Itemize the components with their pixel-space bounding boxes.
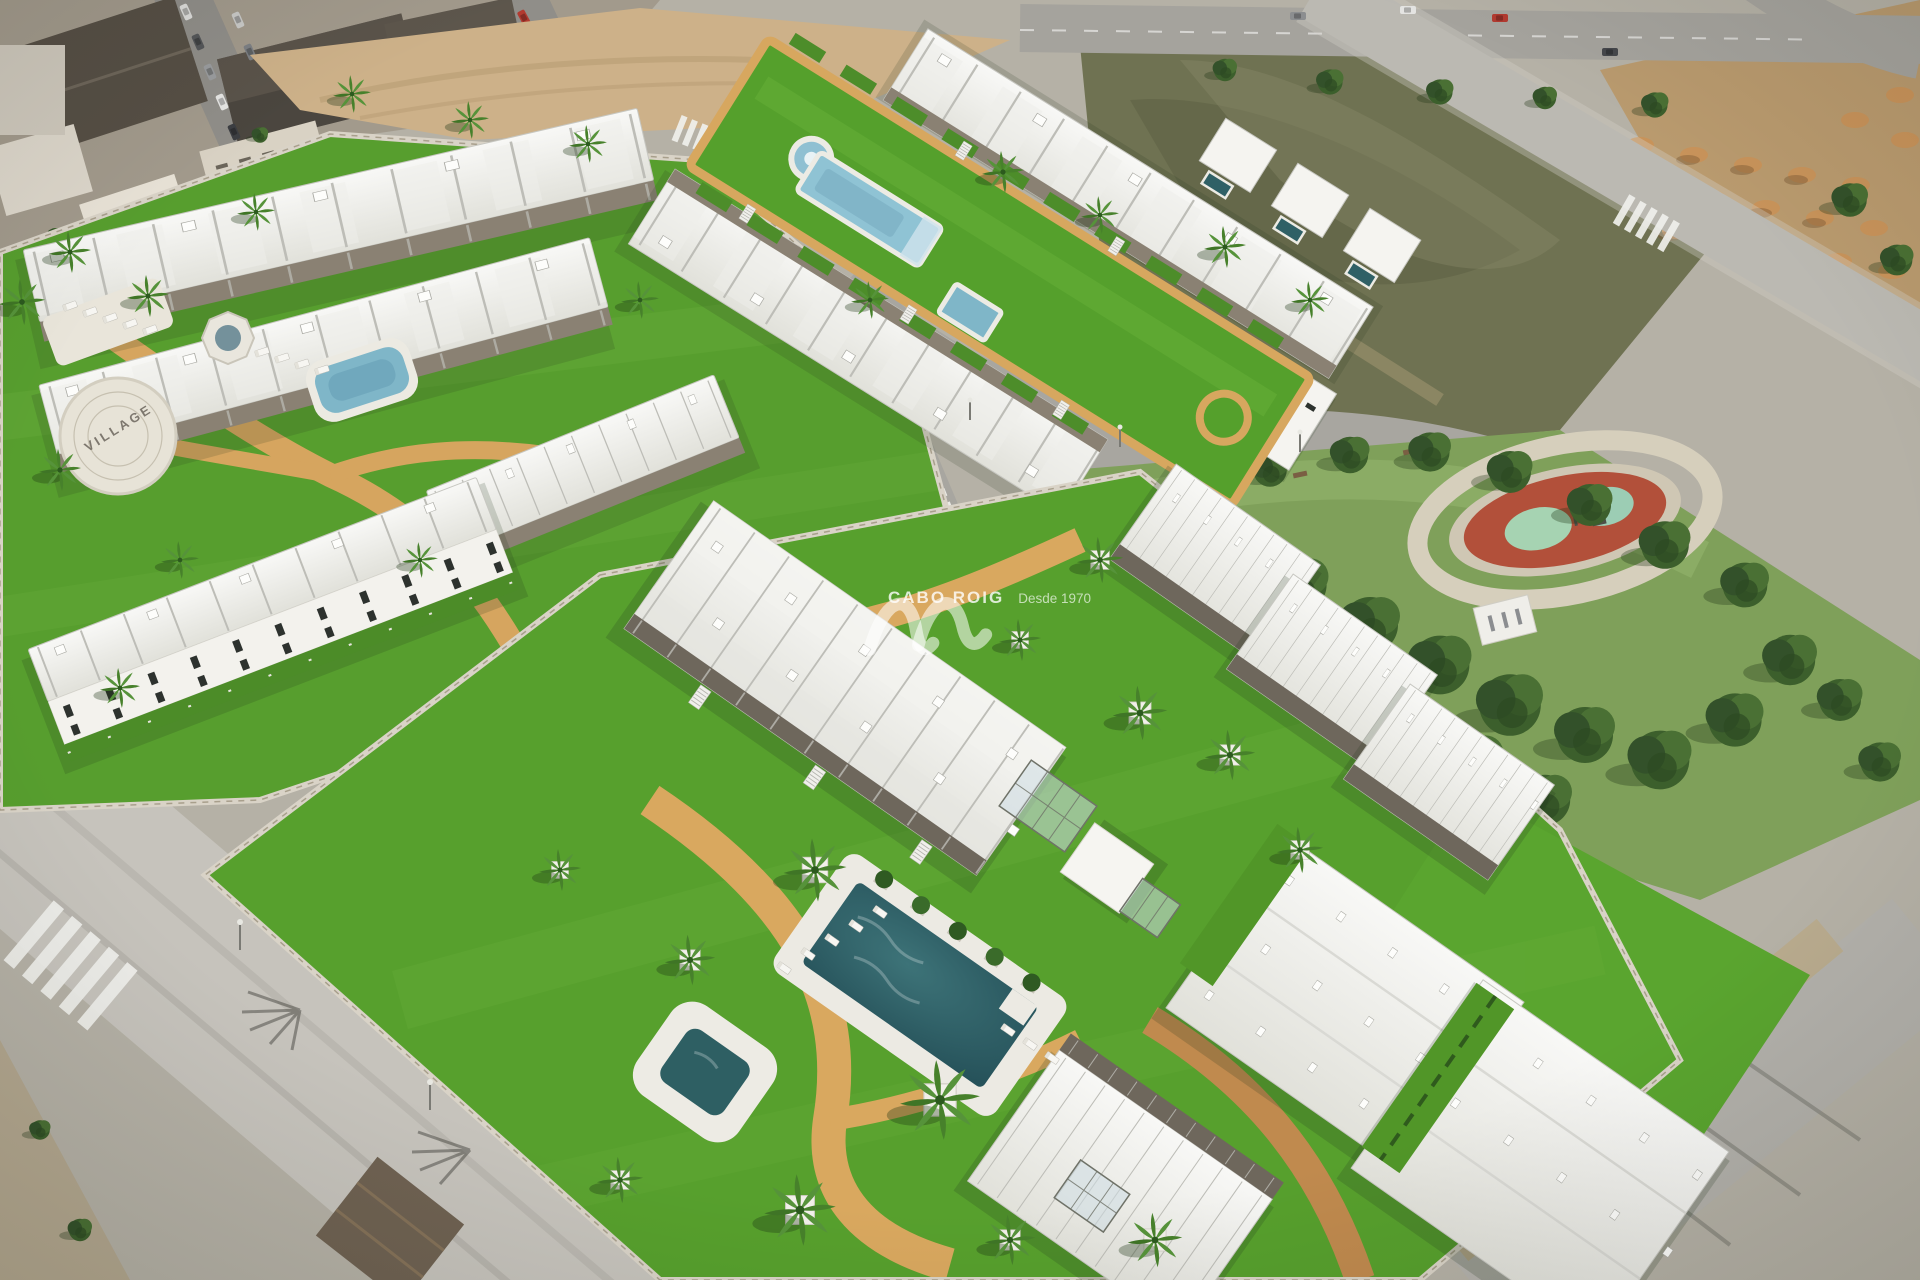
aerial-render-image: VILLAGE (0, 0, 1920, 1280)
vignette-overlay (0, 0, 1920, 1280)
scene-canvas: VILLAGE (0, 0, 1920, 1280)
